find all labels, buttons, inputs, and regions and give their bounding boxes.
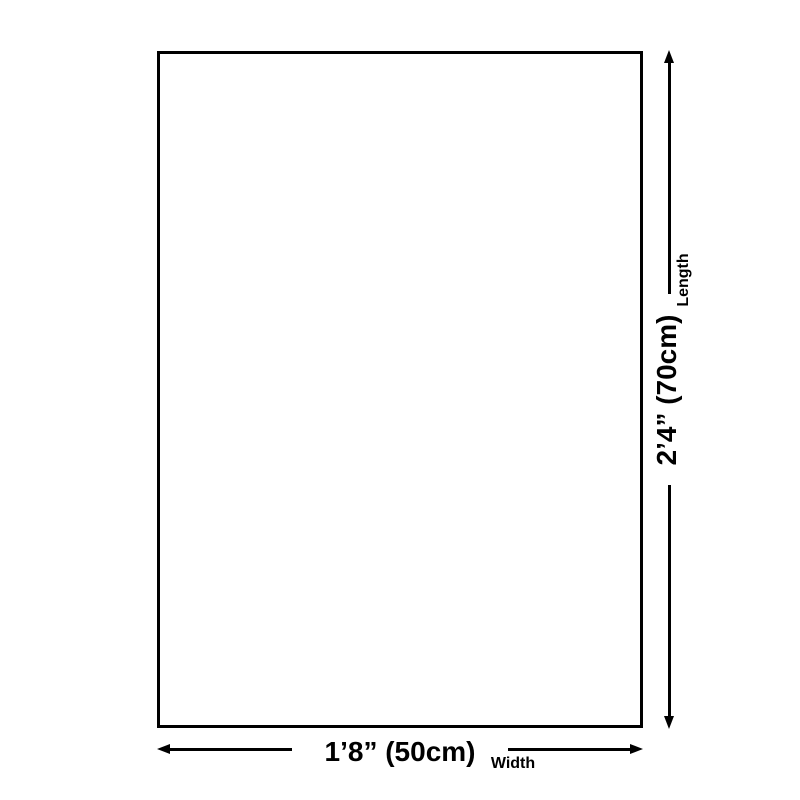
length-dimension-label: Length xyxy=(674,230,694,330)
length-dimension-line-lower xyxy=(668,485,671,716)
length-dimension-line-upper xyxy=(668,61,671,294)
width-dimension-label: Width xyxy=(463,754,563,774)
arrow-down-icon xyxy=(664,716,674,729)
product-outline-rectangle xyxy=(157,51,643,728)
width-dimension-line-left xyxy=(169,748,292,751)
width-dimension-line-right xyxy=(508,748,630,751)
arrow-right-icon xyxy=(630,744,643,754)
dimension-diagram: 2’4” (70cm) Length 1’8” (50cm) Width xyxy=(0,0,800,800)
